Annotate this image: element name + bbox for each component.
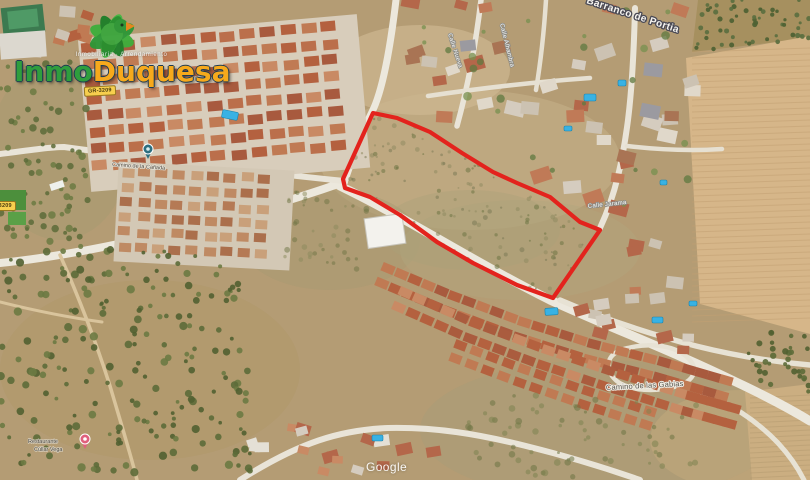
tree <box>108 432 112 436</box>
tree <box>400 140 405 145</box>
tree <box>472 186 475 189</box>
tree <box>715 3 719 7</box>
tree <box>184 352 189 357</box>
tree <box>60 212 65 217</box>
tree <box>60 266 64 270</box>
tree <box>162 342 167 347</box>
tree <box>783 18 786 21</box>
tree <box>312 230 315 233</box>
tree <box>14 307 22 315</box>
house-roof <box>223 63 239 74</box>
tree <box>422 153 424 155</box>
tree <box>640 45 648 53</box>
tree <box>554 214 556 216</box>
house-roof <box>611 173 625 184</box>
tree <box>533 393 539 399</box>
house-roof <box>170 200 182 210</box>
tree <box>752 22 757 27</box>
house-roof <box>205 217 217 227</box>
house-roof <box>147 106 163 117</box>
house-roof <box>303 72 319 83</box>
house-roof <box>421 56 437 68</box>
house-roof <box>155 200 167 210</box>
house-roof <box>432 75 447 86</box>
house-roof <box>191 151 207 162</box>
house-roof <box>162 69 178 80</box>
tree <box>244 368 251 375</box>
tree <box>247 468 253 474</box>
tree <box>718 28 722 32</box>
tree <box>335 243 339 247</box>
house-roof <box>86 109 102 120</box>
tree <box>462 232 466 236</box>
farm-field <box>686 36 810 334</box>
tree <box>8 162 14 168</box>
tree <box>596 418 603 425</box>
tree <box>544 232 546 234</box>
tree <box>440 153 443 156</box>
house-roof <box>155 185 167 195</box>
tree <box>53 340 57 344</box>
tree <box>236 388 243 395</box>
house-roof <box>140 36 156 47</box>
tree <box>76 266 84 274</box>
tree <box>630 77 636 83</box>
tree <box>351 204 354 207</box>
tree <box>564 459 571 466</box>
tree <box>553 257 556 260</box>
tree <box>490 400 496 406</box>
tree <box>758 378 763 383</box>
tree <box>63 177 68 182</box>
tree <box>530 465 537 472</box>
tree <box>713 10 718 15</box>
tree <box>42 60 49 67</box>
tree <box>130 468 138 476</box>
tree <box>132 367 138 373</box>
tree <box>467 182 470 185</box>
tree <box>372 125 377 130</box>
tree <box>63 231 67 235</box>
tree <box>495 109 500 114</box>
tree <box>64 382 69 387</box>
tree <box>54 335 59 340</box>
tree <box>187 323 192 328</box>
tree <box>237 288 241 292</box>
house-roof <box>167 119 183 130</box>
tree <box>744 41 747 44</box>
house-roof <box>258 174 270 184</box>
tree <box>193 297 200 304</box>
house-roof <box>91 159 107 170</box>
swimming-pool <box>372 435 383 441</box>
tree <box>241 445 248 452</box>
tree <box>171 411 175 415</box>
tree <box>364 208 369 213</box>
tree <box>66 204 72 210</box>
tree <box>475 210 477 212</box>
tree <box>67 59 72 64</box>
house-roof <box>204 82 220 93</box>
tree <box>535 410 540 415</box>
tree <box>36 169 43 176</box>
house-roof <box>171 229 183 239</box>
house-roof <box>205 232 217 242</box>
tree <box>91 466 96 471</box>
tree <box>38 291 45 298</box>
house-roof <box>330 123 346 134</box>
tree <box>164 314 169 319</box>
tree <box>526 19 531 24</box>
tree <box>567 264 569 266</box>
tree <box>299 257 304 262</box>
tree <box>83 173 88 178</box>
house-roof <box>101 59 117 70</box>
tree <box>70 102 74 106</box>
house-roof <box>139 198 151 208</box>
house-roof <box>162 51 178 62</box>
tree <box>436 196 439 199</box>
tree <box>652 425 656 429</box>
house-roof <box>306 92 322 103</box>
tree <box>796 26 800 30</box>
tree <box>183 270 190 277</box>
tree <box>17 407 25 415</box>
house-roof <box>183 66 199 77</box>
tree <box>72 422 80 430</box>
tree <box>705 30 709 34</box>
tree <box>515 457 521 463</box>
tree <box>802 378 806 382</box>
tree <box>762 370 768 376</box>
tree <box>580 44 587 51</box>
house-roof <box>120 197 132 207</box>
tree <box>768 382 773 387</box>
house-roof <box>224 188 236 198</box>
house-roof <box>122 168 134 178</box>
tree <box>346 257 351 262</box>
house-roof <box>207 171 219 181</box>
tree <box>421 138 423 140</box>
tree <box>193 254 197 258</box>
tree <box>31 417 38 424</box>
tree <box>24 158 29 163</box>
house-roof <box>236 232 248 242</box>
house-roof <box>119 40 135 51</box>
tree <box>200 440 206 446</box>
house-roof <box>149 121 165 132</box>
house-roof <box>287 109 303 120</box>
house-roof <box>185 230 197 240</box>
tree <box>392 145 397 150</box>
tree <box>29 170 35 176</box>
tree <box>694 46 698 50</box>
tree <box>530 154 536 160</box>
tree <box>342 250 347 255</box>
tree <box>681 140 688 147</box>
tree <box>104 299 109 304</box>
house-roof <box>625 293 639 303</box>
house-roof <box>118 212 130 222</box>
tree <box>775 9 779 13</box>
tree <box>493 177 495 179</box>
tree <box>483 215 488 220</box>
tree <box>85 276 92 283</box>
pin-dot <box>83 437 87 441</box>
tree <box>106 363 114 371</box>
tree <box>508 426 512 430</box>
tree <box>5 145 11 151</box>
tree <box>171 293 176 298</box>
tree <box>142 419 147 424</box>
tree <box>442 162 445 165</box>
tree <box>377 117 382 122</box>
tree <box>69 183 76 190</box>
house-roof <box>180 34 196 45</box>
tree <box>30 88 37 95</box>
tree <box>688 461 693 466</box>
house-roof <box>239 28 255 39</box>
tree <box>47 126 54 133</box>
tree <box>7 377 14 384</box>
tree <box>36 159 41 164</box>
house-roof <box>223 201 235 211</box>
tree <box>160 358 168 366</box>
tree <box>13 295 18 300</box>
house-roof <box>128 141 144 152</box>
tree <box>127 285 135 293</box>
tree <box>483 411 487 415</box>
tree <box>381 162 385 166</box>
tree <box>763 359 769 365</box>
ground-feature <box>0 30 47 59</box>
tree <box>171 422 177 428</box>
tree <box>670 435 675 440</box>
house-roof <box>135 243 147 253</box>
tree <box>448 164 452 168</box>
house-roof <box>173 185 185 195</box>
tree <box>497 256 501 260</box>
tree <box>8 118 14 124</box>
tree <box>582 34 586 38</box>
tree <box>62 367 67 372</box>
tree <box>717 16 722 21</box>
tree <box>373 118 375 120</box>
ground-feature <box>8 212 26 225</box>
house-roof <box>125 88 141 99</box>
tree <box>50 162 56 168</box>
house-roof <box>252 146 268 157</box>
tree <box>790 33 795 38</box>
tree <box>51 144 56 149</box>
house-roof <box>324 70 340 81</box>
tree <box>302 192 307 197</box>
tree <box>765 37 769 41</box>
tree <box>554 459 561 466</box>
tree <box>550 168 555 173</box>
tree <box>553 263 556 266</box>
tree <box>551 251 553 253</box>
house-roof <box>231 149 247 160</box>
tree <box>592 397 598 403</box>
tree <box>602 456 607 461</box>
tree <box>775 39 780 44</box>
tree <box>57 366 61 370</box>
tree <box>531 282 535 286</box>
tree <box>51 225 58 232</box>
tree <box>489 417 495 423</box>
tree <box>86 254 93 261</box>
tree <box>458 187 460 189</box>
tree <box>437 189 441 193</box>
house-roof <box>643 62 663 77</box>
tree <box>782 23 786 27</box>
tree <box>176 313 183 320</box>
tree <box>314 197 319 202</box>
tree <box>81 285 87 291</box>
tree <box>85 197 91 203</box>
house-roof <box>649 292 665 304</box>
tree <box>648 462 651 465</box>
house-roof <box>152 244 164 254</box>
tree <box>307 251 313 257</box>
tree <box>225 461 233 469</box>
tree <box>415 147 420 152</box>
tree <box>422 40 426 44</box>
tree <box>40 128 47 135</box>
tree <box>27 453 31 457</box>
tree <box>149 428 154 433</box>
tree <box>66 424 72 430</box>
house-roof <box>308 126 324 137</box>
tree <box>533 473 538 478</box>
tree <box>474 450 479 455</box>
tree <box>283 255 286 258</box>
house-roof <box>310 143 326 154</box>
tree <box>330 209 333 212</box>
tree <box>557 451 560 454</box>
tree <box>40 223 46 229</box>
tree <box>361 152 363 154</box>
tree <box>470 65 478 73</box>
tree <box>155 254 160 259</box>
house-roof <box>304 56 320 67</box>
house-roof <box>172 215 184 225</box>
tree <box>802 334 807 339</box>
tree <box>472 220 477 225</box>
tree <box>66 235 72 241</box>
tree <box>100 301 104 305</box>
tree <box>73 414 77 418</box>
tree <box>77 463 85 471</box>
house-roof <box>240 188 252 198</box>
tree <box>534 205 539 210</box>
tree <box>482 210 485 213</box>
house-roof <box>144 70 160 81</box>
tree <box>752 15 756 19</box>
tree <box>188 396 195 403</box>
tree <box>608 458 614 464</box>
tree <box>471 167 473 169</box>
tree <box>55 108 62 115</box>
tree <box>477 456 482 461</box>
house-roof <box>323 39 339 50</box>
house-roof <box>219 31 235 42</box>
tree <box>214 272 220 278</box>
tree <box>403 180 406 183</box>
tree <box>463 92 472 101</box>
tree <box>102 306 106 310</box>
tree <box>515 418 522 425</box>
tree <box>235 281 241 287</box>
tree <box>633 168 637 172</box>
tree <box>284 247 290 253</box>
tree <box>130 326 138 334</box>
tree <box>144 331 150 337</box>
tree <box>461 208 464 211</box>
tree <box>789 334 794 339</box>
swimming-pool <box>564 126 572 131</box>
tree <box>84 379 89 384</box>
tree <box>543 206 546 209</box>
tree <box>46 238 53 245</box>
tree <box>134 416 140 422</box>
tree <box>218 421 222 425</box>
tree <box>453 215 456 218</box>
tree <box>230 295 237 302</box>
tree <box>19 274 26 281</box>
tree <box>292 237 297 242</box>
tree <box>172 417 176 421</box>
tree <box>9 258 13 262</box>
tree <box>176 400 180 404</box>
house-roof <box>272 144 288 155</box>
house-roof <box>566 109 584 122</box>
tree <box>165 253 171 259</box>
tree <box>474 165 476 167</box>
tree <box>116 437 121 442</box>
tree <box>355 257 358 260</box>
house-roof <box>118 226 130 236</box>
tree <box>326 261 329 264</box>
house-roof <box>123 55 139 66</box>
tree <box>387 142 390 145</box>
tree <box>584 410 587 413</box>
tree <box>392 123 397 128</box>
tree <box>24 337 32 345</box>
tree <box>768 330 774 336</box>
house-roof <box>270 128 286 139</box>
tree <box>0 423 5 428</box>
house-roof <box>189 186 201 196</box>
tree <box>133 401 140 408</box>
house-roof <box>207 100 223 111</box>
tree <box>482 30 486 34</box>
tree <box>583 428 587 432</box>
tree <box>148 304 153 309</box>
tree <box>223 348 230 355</box>
tree <box>434 170 438 174</box>
tree <box>90 332 98 340</box>
house-roof <box>128 123 144 134</box>
tree <box>73 227 77 231</box>
tree <box>31 201 36 206</box>
tree <box>54 397 58 401</box>
tree <box>23 69 27 73</box>
tree <box>221 371 226 376</box>
house-roof <box>585 121 603 134</box>
tree <box>545 259 547 261</box>
